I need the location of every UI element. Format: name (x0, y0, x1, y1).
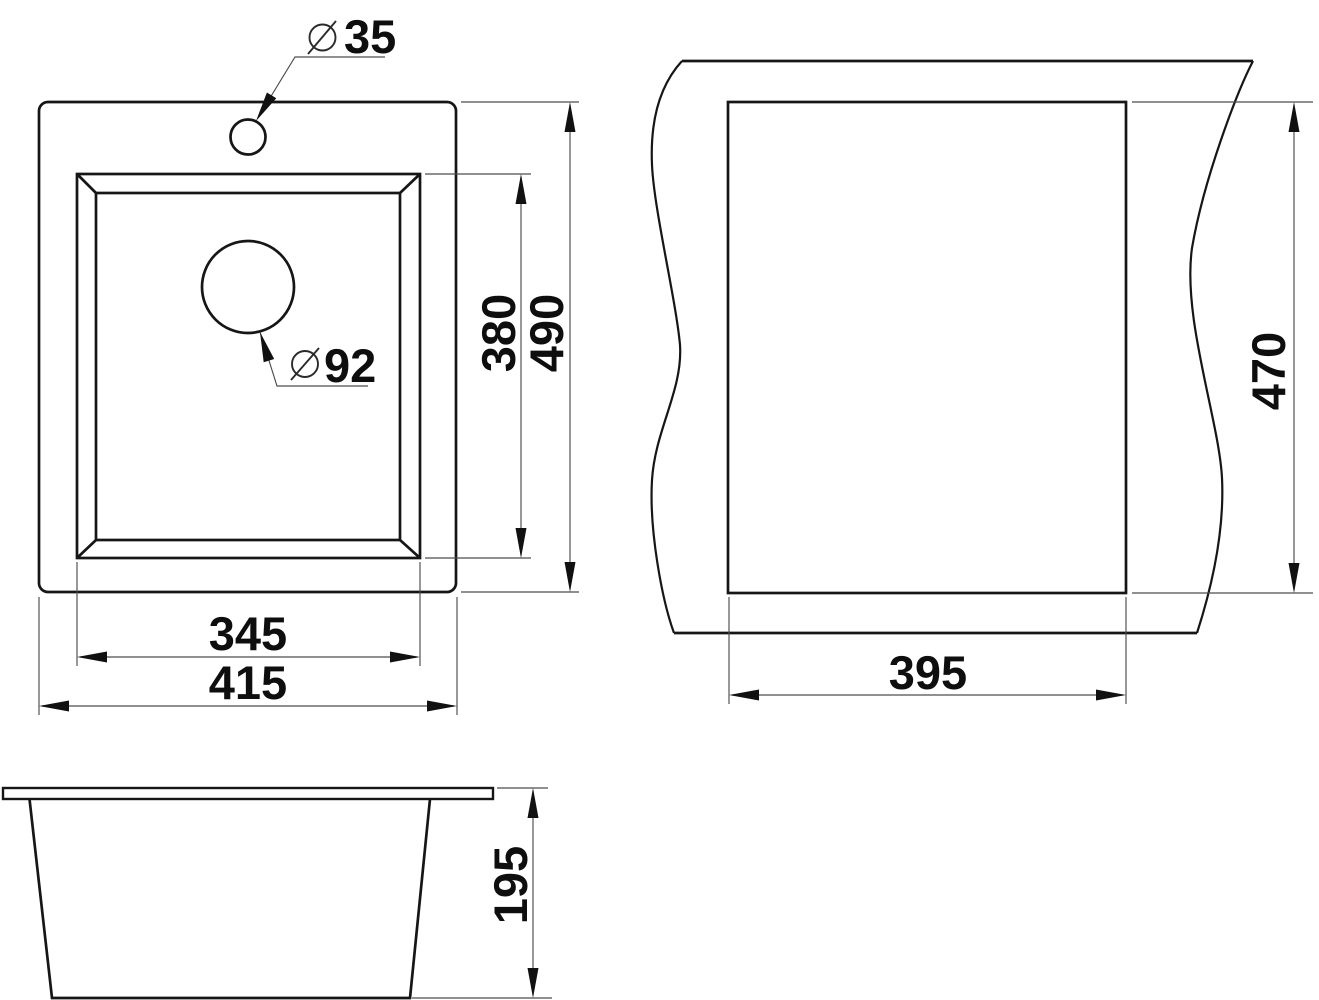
faucet-hole (231, 120, 266, 155)
arrowhead-down (528, 968, 539, 998)
rim-flange (3, 788, 493, 799)
arrowhead-right (390, 652, 420, 663)
dim-cutout-length: 470 (1132, 102, 1313, 593)
sink-outer-contour (39, 102, 456, 592)
drain-hole (202, 241, 294, 333)
arrowhead-up (1289, 102, 1300, 132)
diameter-icon (308, 21, 336, 54)
cutout-view: 470 395 (652, 61, 1313, 704)
overall-width-value: 415 (209, 656, 287, 709)
bowl-width-value: 345 (209, 607, 287, 660)
arrowhead-left (77, 652, 107, 663)
diameter-icon (291, 348, 319, 380)
drawing-canvas: 35 92 380 490 (0, 0, 1319, 1000)
break-line-left (652, 61, 682, 633)
leader-arrowhead (260, 332, 274, 362)
dim-faucet-diameter: 35 (256, 10, 396, 121)
dim-cutout-width: 395 (729, 597, 1126, 704)
arrowhead-down (565, 562, 576, 592)
arrowhead-up (565, 102, 576, 132)
leader-arrowhead (256, 93, 276, 122)
cutout-width-value: 395 (889, 646, 967, 699)
dim-bowl-width: 345 (77, 562, 420, 666)
arrowhead-right (1096, 690, 1126, 701)
section-view: 195 (3, 788, 552, 998)
arrowhead-up (528, 788, 539, 818)
arrowhead-down (516, 528, 527, 558)
overall-length-value: 490 (520, 294, 573, 372)
plan-view: 35 92 380 490 (39, 10, 579, 715)
dim-bowl-length: 380 (425, 174, 531, 558)
arrowhead-right (427, 701, 457, 712)
faucet-diameter-value: 35 (344, 10, 396, 63)
cutout-rectangle (728, 102, 1126, 593)
dim-drain-diameter: 92 (260, 332, 376, 392)
bowl-length-value: 380 (472, 294, 525, 372)
dim-bowl-depth: 195 (412, 788, 552, 998)
arrowhead-up (516, 174, 527, 204)
bowl-body (30, 799, 431, 998)
sink-dimension-drawing: 35 92 380 490 (0, 0, 1319, 1000)
drain-diameter-value: 92 (324, 339, 376, 392)
bowl-depth-value: 195 (484, 846, 537, 924)
arrowhead-down (1289, 563, 1300, 593)
arrowhead-left (39, 701, 69, 712)
arrowhead-left (729, 690, 759, 701)
cutout-length-value: 470 (1242, 332, 1295, 410)
